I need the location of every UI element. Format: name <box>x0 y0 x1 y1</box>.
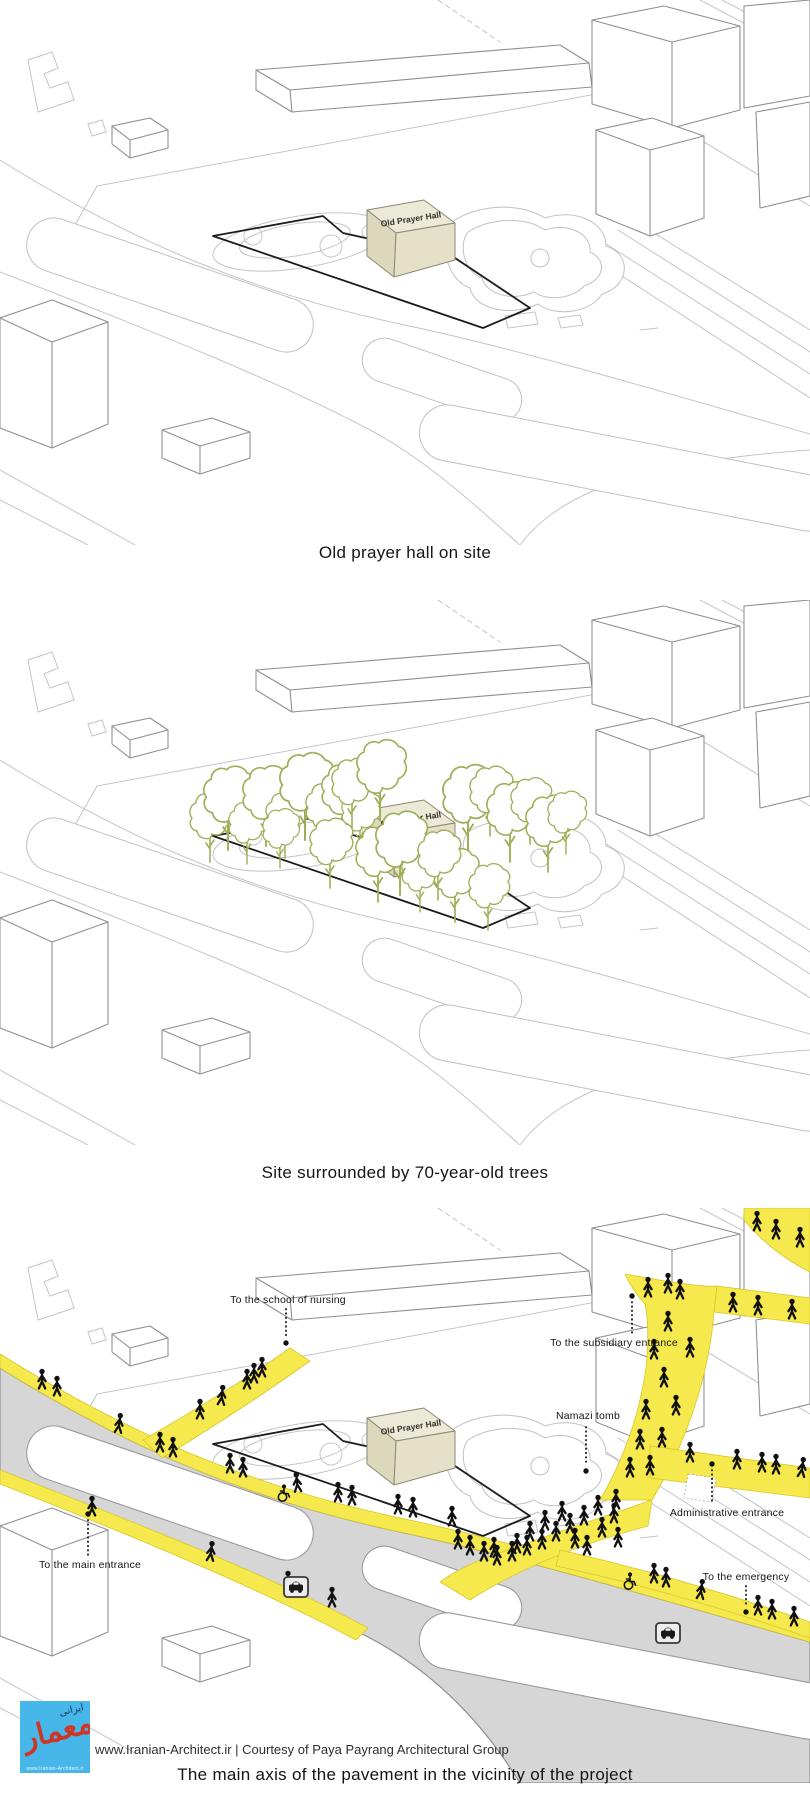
label-school-of-nursing: To the school of nursing <box>230 1294 346 1306</box>
car-icon <box>284 1577 308 1597</box>
panel-old-prayer-hall <box>0 0 810 545</box>
iranian-architect-logo: ایرانی معمار www.Iranian-Architect.ir <box>20 1701 90 1773</box>
panel-site-with-trees <box>0 600 810 1145</box>
panel-pavement-axis: To the school of nursing To the subsidia… <box>0 1208 810 1783</box>
caption-pavement-axis: The main axis of the pavement in the vic… <box>0 1765 810 1785</box>
label-namazi-tomb: Namazi tomb <box>556 1410 620 1422</box>
label-emergency: To the emergency <box>703 1571 790 1583</box>
label-subsidiary-entrance: To the subsidiary entrance <box>550 1337 678 1349</box>
car-icon <box>656 1623 680 1643</box>
label-administrative-entrance: Administrative entrance <box>670 1507 784 1519</box>
credit-line: www.Iranian-Architect.ir | Courtesy of P… <box>95 1742 509 1757</box>
label-main-entrance: To the main entrance <box>39 1559 141 1571</box>
caption-site-with-trees: Site surrounded by 70-year-old trees <box>0 1163 810 1183</box>
caption-old-prayer-hall: Old prayer hall on site <box>0 543 810 563</box>
architectural-diagram-page: Old Prayer Hall <box>0 0 810 1797</box>
logo-text: معمار <box>20 1708 90 1757</box>
